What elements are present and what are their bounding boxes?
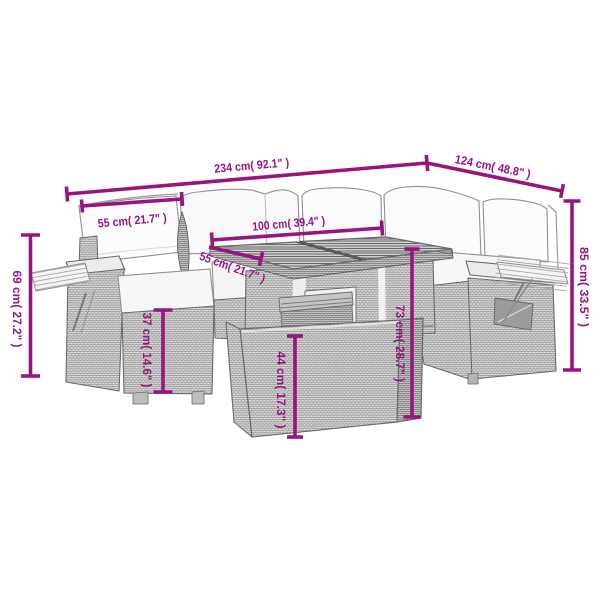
svg-text:85 cm( 33.5" ): 85 cm( 33.5" ) [577,247,591,327]
svg-text:37 cm( 14.6" ): 37 cm( 14.6" ) [140,313,154,388]
svg-text:234 cm( 92.1" ): 234 cm( 92.1" ) [214,155,290,175]
svg-text:73 cm( 28.7" ): 73 cm( 28.7" ) [393,305,407,382]
svg-text:69 cm( 27.2" ): 69 cm( 27.2" ) [10,271,24,348]
svg-text:44 cm( 17.3" ): 44 cm( 17.3" ) [274,352,288,429]
